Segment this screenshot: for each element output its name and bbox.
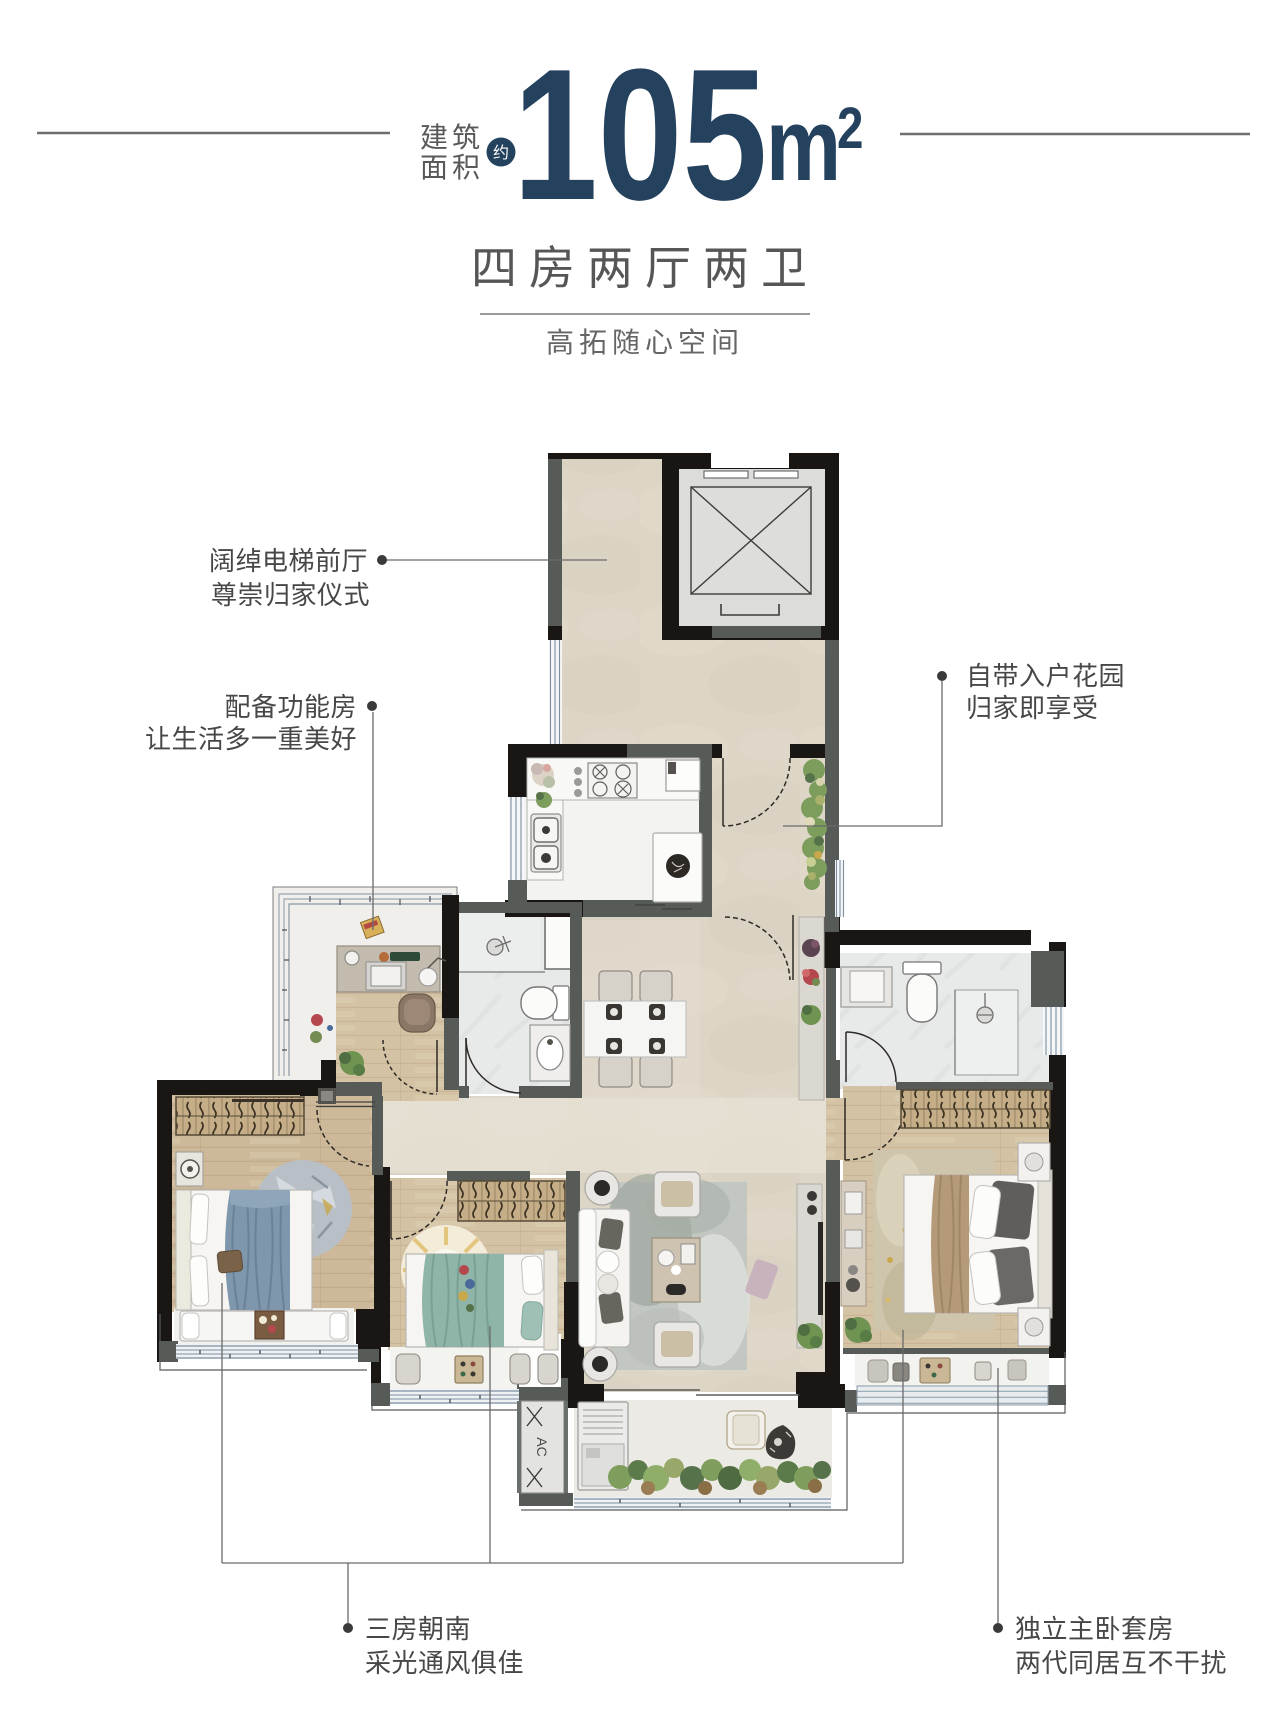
svg-text:2: 2 [837,97,863,162]
svg-text:高拓随心空间: 高拓随心空间 [546,327,744,358]
svg-text:采光通风俱佳: 采光通风俱佳 [365,1648,524,1678]
svg-text:m: m [766,87,841,202]
svg-text:尊崇归家仪式: 尊崇归家仪式 [211,580,370,610]
svg-text:让生活多一重美好: 让生活多一重美好 [145,724,357,754]
svg-text:约: 约 [493,144,509,162]
svg-text:配备功能房: 配备功能房 [224,692,357,722]
svg-text:建筑: 建筑 [420,122,484,153]
svg-text:归家即享受: 归家即享受 [966,693,1099,723]
svg-text:105: 105 [513,31,767,239]
svg-text:四房两厅两卫: 四房两厅两卫 [471,242,819,294]
svg-text:独立主卧套房: 独立主卧套房 [1015,1614,1174,1644]
svg-text:面积: 面积 [420,152,484,183]
svg-text:AC: AC [534,1437,550,1456]
svg-text:自带入户花园: 自带入户花园 [966,661,1125,691]
svg-text:阔绰电梯前厅: 阔绰电梯前厅 [209,546,368,576]
svg-text:两代同居互不干扰: 两代同居互不干扰 [1015,1648,1227,1678]
svg-text:三房朝南: 三房朝南 [365,1614,471,1644]
